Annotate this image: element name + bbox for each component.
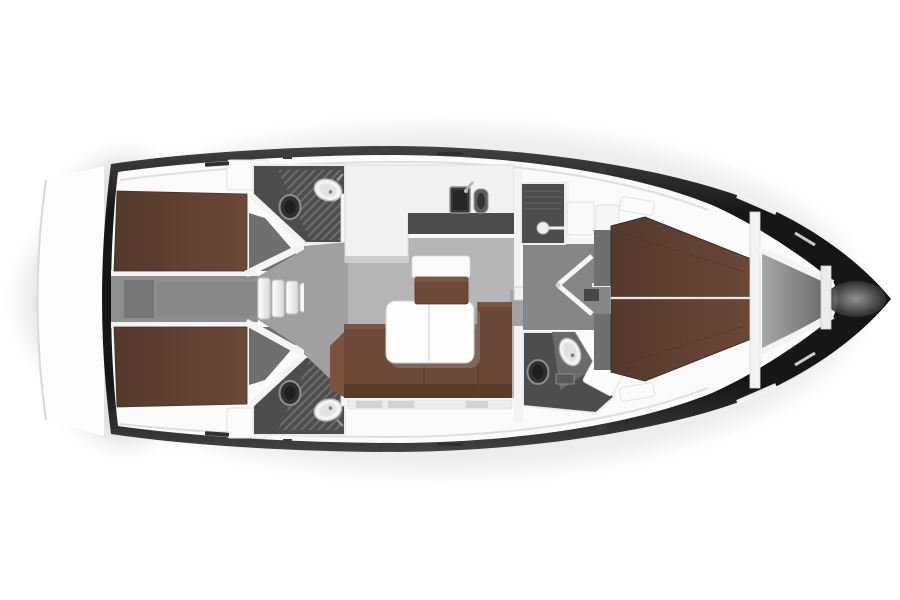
saloon-table: Saloon table [386,301,480,368]
yacht-floor-plan: Stern swim platform outline Hull Engine … [0,0,900,600]
double-berth-starboard [114,327,247,407]
step [286,281,298,314]
anchor-locker-bar [821,266,831,329]
deck-fitting [283,156,292,159]
locker [567,202,594,235]
bow: Bow [826,281,886,317]
deck-fitting [357,152,365,155]
sofa-backrest [344,384,512,398]
deck-fitting [437,152,463,155]
counter-front [408,213,514,234]
bow-tip-shading [826,281,886,317]
double-berth-port [114,191,247,271]
deck-fitting [357,443,365,446]
shower-head [537,222,549,234]
engine-hatch [124,280,154,318]
swim-platform: Stern swim platform outline [38,166,105,436]
deck-fitting [437,443,463,446]
engine-compartment: Engine compartment [111,270,258,328]
table-top [386,301,474,363]
step [272,280,284,317]
collision-bulkhead [750,212,760,388]
sofa-back-right [478,302,512,398]
chart-seat: Navigation seat with table [412,256,470,304]
forward-shower: Forward shower compartment [521,183,566,244]
deck-fitting [283,439,292,442]
step [258,278,270,319]
chart-table [412,256,470,278]
